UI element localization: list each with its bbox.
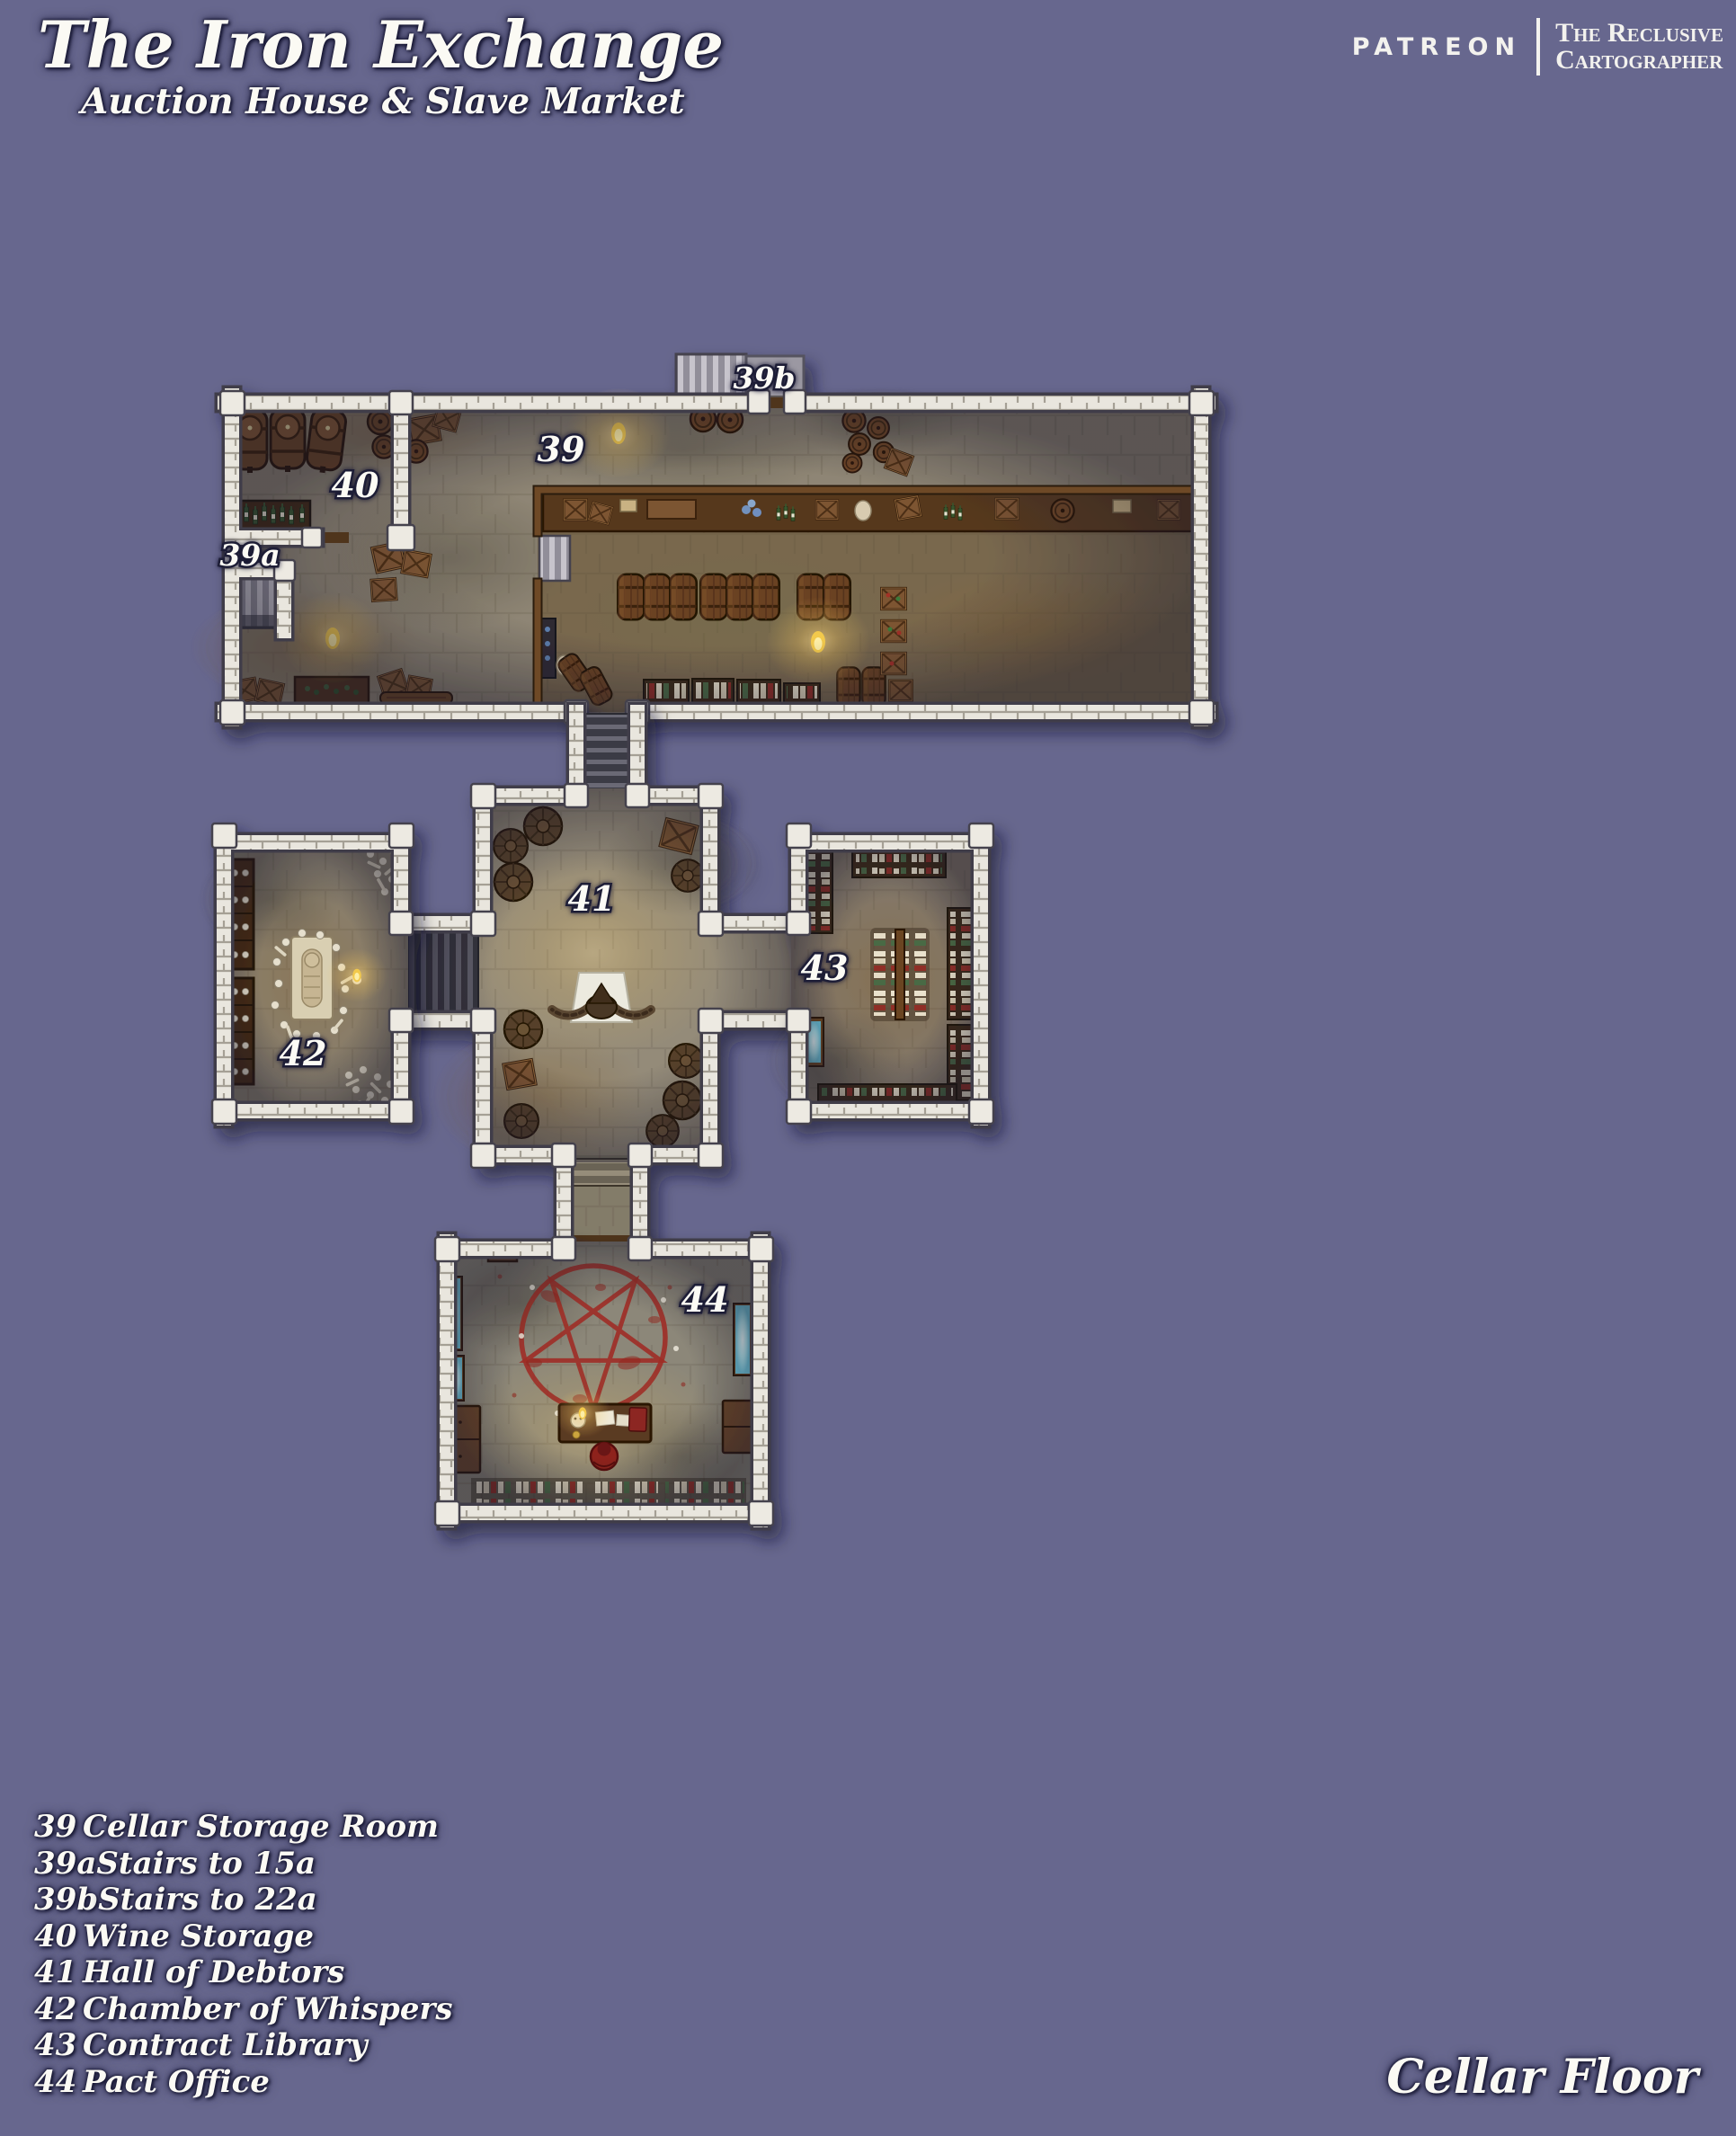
legend-num: 39b: [34, 1882, 98, 1918]
room-label-40: 40: [332, 465, 379, 505]
map-legend: 39Cellar Storage Room 39aStairs to 15a 3…: [34, 1809, 453, 2100]
legend-num: 39a: [34, 1846, 96, 1882]
legend-num: 42: [34, 1991, 83, 2028]
room-label-42: 42: [280, 1033, 327, 1073]
wall-pillar: [1189, 391, 1214, 415]
wall-pillar: [389, 1099, 414, 1124]
wall-pillar: [699, 1144, 723, 1168]
wall-pillar: [471, 912, 495, 936]
legend-num: 39: [34, 1809, 83, 1846]
wall-pillar: [302, 528, 322, 547]
legend-num: 43: [34, 2027, 83, 2064]
legend-label: Hall of Debtors: [83, 1954, 344, 1990]
wall-pillar: [787, 1009, 810, 1032]
room-label-44: 44: [681, 1279, 729, 1320]
legend-item: 44Pact Office: [34, 2064, 453, 2101]
legend-num: 41: [34, 1954, 83, 1991]
wall-pillar: [699, 912, 723, 936]
title-block: The Iron Exchange Auction House & Slave …: [38, 11, 724, 122]
legend-item: 39bStairs to 22a: [34, 1882, 453, 1918]
wall-pillar: [699, 1009, 723, 1033]
credit-line-1: The Reclusive: [1555, 20, 1723, 47]
room-41-hall-of-debtors: [401, 712, 806, 1249]
wall-pillar: [552, 1237, 575, 1260]
wall-pillar: [749, 1501, 773, 1526]
legend-item: 40Wine Storage: [34, 1918, 453, 1955]
wall-pillar: [969, 823, 993, 848]
wall-pillar: [628, 1237, 652, 1260]
credit-line-2: Cartographer: [1555, 47, 1723, 74]
wall-pillar: [389, 1009, 413, 1032]
legend-item: 42Chamber of Whispers: [34, 1991, 453, 2028]
room-43-contract-library: [764, 823, 993, 1124]
legend-item: 39Cellar Storage Room: [34, 1809, 453, 1846]
room-39-cellar-storage: [189, 354, 1214, 725]
page-title: The Iron Exchange: [38, 11, 724, 79]
wall-pillar: [435, 1237, 459, 1261]
legend-label: Contract Library: [83, 2027, 368, 2063]
legend-label: Wine Storage: [83, 1918, 314, 1954]
legend-label: Stairs to 22a: [98, 1882, 317, 1918]
wall-pillar: [220, 700, 245, 725]
legend-num: 44: [34, 2064, 83, 2101]
legend-label: Cellar Storage Room: [83, 1809, 439, 1845]
wall-pillar: [626, 784, 649, 807]
room-label-39: 39: [538, 429, 585, 469]
wall-pillar: [435, 1501, 459, 1526]
legend-label: Chamber of Whispers: [83, 1991, 453, 2027]
legend-num: 40: [34, 1918, 83, 1955]
room-label-39b: 39b: [734, 360, 796, 396]
wall-pillar: [699, 784, 723, 808]
wall-pillar: [787, 823, 811, 848]
wall-pillar: [389, 823, 414, 848]
room-label-41: 41: [568, 878, 616, 919]
legend-label: Stairs to 15a: [96, 1846, 316, 1882]
page-subtitle: Auction House & Slave Market: [81, 81, 724, 122]
wall-pillar: [1189, 700, 1214, 725]
legend-item: 39aStairs to 15a: [34, 1846, 453, 1882]
floor-label: Cellar Floor: [1386, 2050, 1698, 2105]
wall-pillar: [471, 1009, 495, 1033]
wall-pillar: [787, 1099, 811, 1124]
wall-pillar: [389, 912, 413, 935]
patreon-wordmark: PATREON: [1352, 33, 1521, 61]
wall-pillar: [969, 1099, 993, 1124]
wall-pillar: [212, 823, 236, 848]
wall-pillar: [565, 784, 588, 807]
map-poster: 39b 39 40 39a 41 42 43 44 The Iron Excha…: [0, 0, 1736, 2136]
room-label-39a: 39a: [219, 538, 280, 573]
wall-pillar: [389, 391, 413, 414]
wall-pillar: [628, 1144, 652, 1167]
wall-pillar: [471, 1144, 495, 1168]
legend-item: 41Hall of Debtors: [34, 1954, 453, 1991]
brand-divider: [1536, 18, 1540, 76]
room-42-chamber-of-whispers: [198, 823, 414, 1124]
wall-pillar: [471, 784, 495, 808]
wall-pillar: [387, 525, 414, 550]
brand-block: PATREON The Reclusive Cartographer: [1352, 18, 1723, 76]
room-label-43: 43: [801, 948, 849, 988]
legend-item: 43Contract Library: [34, 2027, 453, 2064]
wall-pillar: [787, 912, 810, 935]
wall-pillar: [220, 391, 245, 415]
wall-pillar: [212, 1099, 236, 1124]
legend-label: Pact Office: [83, 2064, 270, 2100]
cartographer-credit: The Reclusive Cartographer: [1555, 20, 1723, 74]
wall-pillar: [552, 1144, 575, 1167]
wall-pillar: [749, 1237, 773, 1261]
